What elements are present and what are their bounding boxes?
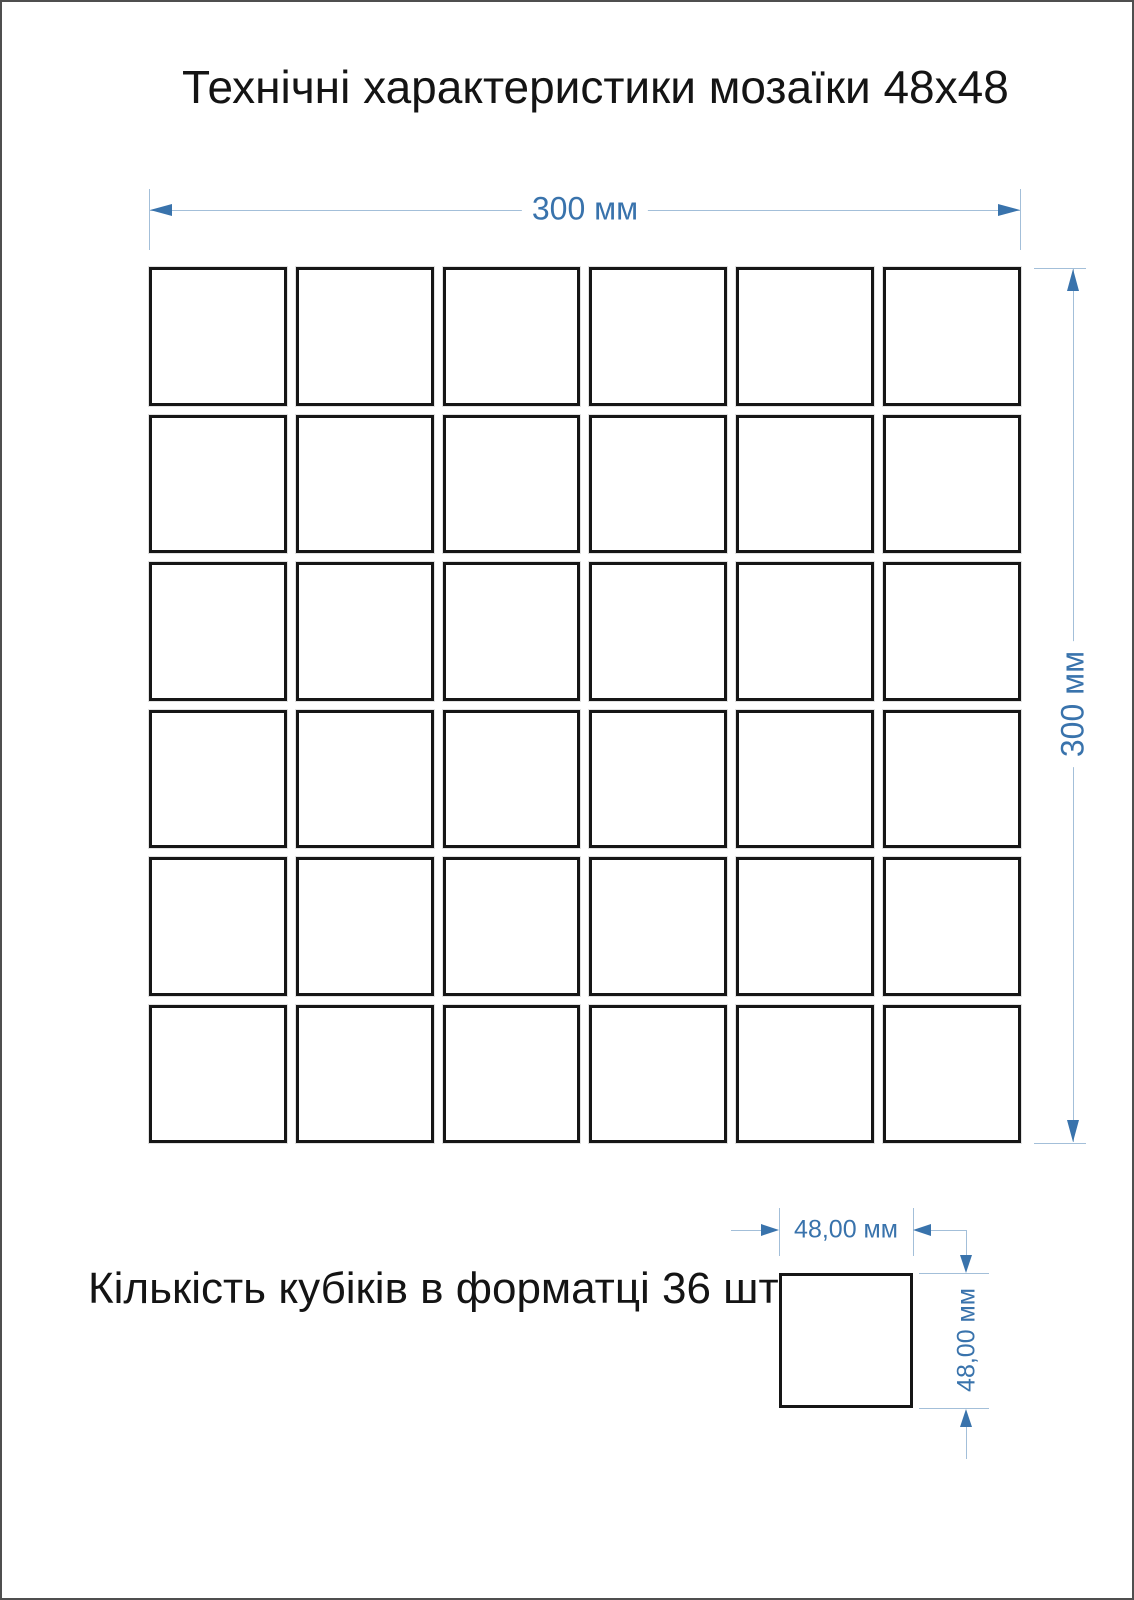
mosaic-tile (589, 1005, 727, 1144)
mosaic-tile (736, 1005, 874, 1144)
extension-line-left (149, 189, 150, 250)
dimension-tail-bottom (966, 1427, 967, 1459)
sheet-width-label: 300 мм (522, 191, 648, 228)
dimension-arrow-up-icon (960, 1409, 972, 1427)
dimension-arrow-up-icon (1067, 269, 1079, 291)
spec-sheet-page: Технічні характеристики мозаїки 48х48 30… (0, 0, 1134, 1600)
dimension-arrow-down-icon (1067, 1120, 1079, 1142)
mosaic-tile (443, 562, 581, 701)
mosaic-tile (296, 562, 434, 701)
caption-text: Кількість кубіків в форматці 36 шт (88, 1264, 779, 1314)
mosaic-tile (883, 562, 1021, 701)
extension-line-bottom (919, 1408, 989, 1409)
dimension-arrow-right-icon (761, 1224, 779, 1236)
mosaic-tile (296, 415, 434, 554)
extension-line-left (779, 1208, 780, 1256)
extension-line-right (1020, 189, 1021, 250)
dimension-arrow-right-icon (998, 204, 1020, 216)
dimension-arrow-left-icon (913, 1224, 931, 1236)
mosaic-tile (149, 267, 287, 406)
mosaic-grid (149, 267, 1021, 1143)
mosaic-tile (443, 415, 581, 554)
mosaic-tile (149, 710, 287, 849)
mosaic-tile (589, 857, 727, 996)
sheet-height-label: 300 мм (1055, 641, 1092, 767)
dimension-arrow-down-icon (960, 1255, 972, 1273)
mosaic-tile (443, 267, 581, 406)
mosaic-tile (296, 267, 434, 406)
mosaic-tile (883, 415, 1021, 554)
mosaic-tile (443, 710, 581, 849)
dimension-tail-right (931, 1230, 967, 1231)
mosaic-tile (883, 267, 1021, 406)
mosaic-tile (589, 267, 727, 406)
mosaic-tile (736, 562, 874, 701)
mosaic-tile (736, 267, 874, 406)
mosaic-tile (736, 710, 874, 849)
mosaic-tile (883, 857, 1021, 996)
chip-height-label: 48,00 мм (953, 1278, 982, 1402)
mosaic-tile (296, 710, 434, 849)
extension-line-top (919, 1273, 989, 1274)
mosaic-tile (149, 415, 287, 554)
mosaic-tile (443, 1005, 581, 1144)
mosaic-tile (883, 710, 1021, 849)
mosaic-tile (149, 1005, 287, 1144)
mosaic-tile (589, 710, 727, 849)
dimension-tail-top (966, 1230, 967, 1255)
mosaic-tile (443, 857, 581, 996)
extension-line-bottom (1034, 1143, 1086, 1144)
mosaic-tile (296, 1005, 434, 1144)
chip-width-label: 48,00 мм (784, 1216, 908, 1245)
mosaic-tile (736, 415, 874, 554)
mosaic-tile (589, 562, 727, 701)
dimension-tail-left (731, 1230, 763, 1231)
mosaic-tile (883, 1005, 1021, 1144)
mosaic-tile (149, 562, 287, 701)
chip-square (779, 1273, 913, 1408)
mosaic-tile (589, 415, 727, 554)
page-title: Технічні характеристики мозаїки 48х48 (182, 60, 1009, 114)
mosaic-tile (736, 857, 874, 996)
mosaic-tile (296, 857, 434, 996)
dimension-arrow-left-icon (150, 204, 172, 216)
mosaic-tile (149, 857, 287, 996)
